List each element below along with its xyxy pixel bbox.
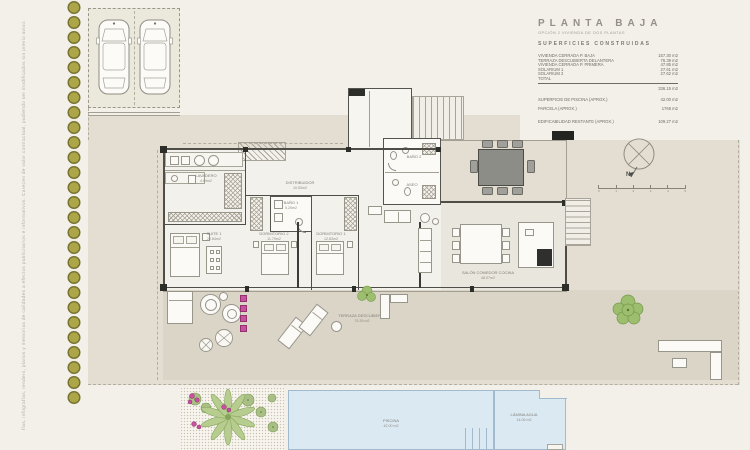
pool-steps xyxy=(465,428,493,450)
flower-pot xyxy=(240,305,247,312)
canopy-edge-right xyxy=(566,140,567,203)
column xyxy=(346,147,351,152)
chair xyxy=(512,187,523,195)
driveway-edge-2 xyxy=(88,115,180,116)
room-label-dormitorio2: DORMITORIO 2 11.79m2 xyxy=(259,232,288,241)
daybed-line xyxy=(169,300,192,301)
surface-label: PARCELA (APROX.) xyxy=(538,107,646,112)
tick-label: 3 xyxy=(650,189,652,193)
parking-area xyxy=(88,8,180,108)
terrace-tree xyxy=(608,290,648,330)
room-label-distribuidor: DISTRIBUIDOR 10.53m2 xyxy=(286,181,315,190)
page-subtitle: OPCIÓN 2 VIVIENDA DE DOS PLANTAS xyxy=(538,30,678,35)
surfaces-row: TOTAL xyxy=(538,77,678,82)
tick-label: 4 xyxy=(667,189,669,193)
sofa-piece xyxy=(380,294,390,319)
chair xyxy=(497,187,508,195)
flower-pot xyxy=(240,315,247,322)
cushion-line xyxy=(398,212,399,223)
tick-label: 2 xyxy=(633,189,635,193)
surfaces-table: VIVIENDA CERRADA P. BAJA 157.30 m2 TERRA… xyxy=(538,54,678,81)
wall-suite-top xyxy=(165,224,245,225)
tick-mark xyxy=(633,185,634,189)
chair xyxy=(527,160,535,173)
pillow xyxy=(276,244,286,251)
spoke-tables xyxy=(198,328,243,354)
scale-tick: 4 xyxy=(667,185,669,193)
bed-dorm2 xyxy=(261,241,289,275)
room-label-bano2: BAÑO 2 xyxy=(407,155,422,160)
wardrobe-dorm2 xyxy=(250,197,263,231)
chair xyxy=(470,160,478,173)
hob-icon xyxy=(537,249,552,266)
bed-line xyxy=(317,253,343,254)
chair xyxy=(497,140,508,148)
column xyxy=(160,284,167,291)
sofa-piece xyxy=(390,294,408,303)
chair xyxy=(482,140,493,148)
round-chair xyxy=(222,304,241,323)
shower-icon xyxy=(422,185,436,199)
sofa-vertical xyxy=(418,228,432,273)
laundry-counter xyxy=(165,152,243,167)
column xyxy=(243,147,248,152)
nightstand xyxy=(347,241,353,248)
boundary-dash-right xyxy=(738,140,739,385)
dimension-line-left xyxy=(157,150,158,380)
drawer xyxy=(216,250,220,254)
sink-icon xyxy=(171,175,178,182)
sofa-piece xyxy=(710,352,722,380)
pillow xyxy=(186,236,197,244)
surfaces-heading: SUPERFICIES CONSTRUIDAS xyxy=(538,41,678,47)
drawer xyxy=(210,250,214,254)
toilet-icon xyxy=(404,187,411,196)
sink-icon xyxy=(392,179,399,186)
side-table xyxy=(420,213,430,223)
coffee-table xyxy=(672,358,687,368)
washer-icon xyxy=(194,155,205,166)
dresser xyxy=(206,246,222,274)
total-divider xyxy=(538,83,678,84)
suite-shower xyxy=(224,173,242,209)
room-label-suite1: SUITE 1 20.84m2 xyxy=(206,232,221,241)
appliance-icon xyxy=(181,156,190,165)
page-title: PLANTA BAJA xyxy=(538,18,678,29)
water-sheet-detail xyxy=(547,444,563,450)
scale-tick: 3 xyxy=(650,185,652,193)
cushion-line xyxy=(420,262,432,263)
scale-tick: 0 xyxy=(598,185,600,193)
sink-icon xyxy=(525,229,534,236)
side-table xyxy=(219,292,228,301)
scale-tick: 2 xyxy=(633,185,635,193)
surface-value: 1766 m2 xyxy=(646,107,678,112)
tick-label: 0 xyxy=(598,189,600,193)
surface-label: TOTAL xyxy=(538,77,646,82)
surface-value xyxy=(646,77,678,82)
porch-table xyxy=(478,149,524,186)
kitchen-island xyxy=(518,222,554,268)
chair xyxy=(512,140,523,148)
room-label-aseo: ASEO xyxy=(406,183,417,188)
boundary-dash-bottom xyxy=(88,384,738,385)
round-chair-seat xyxy=(205,299,217,311)
terrace-area xyxy=(163,290,738,380)
wall-top xyxy=(163,148,441,150)
drawer xyxy=(210,266,214,270)
tick-label: 5 xyxy=(684,189,686,193)
wall-suite-bath xyxy=(165,170,245,171)
chair xyxy=(482,187,493,195)
room-label-terraza: TERRAZA DESCUBIERTA 76.39 m2 xyxy=(338,314,386,323)
column xyxy=(562,284,569,291)
lounger-line xyxy=(312,312,322,320)
tick-mark xyxy=(616,185,617,189)
drawer xyxy=(210,258,214,262)
room-label-salon: SALÓN COMEDOR COCINA 48.07m2 xyxy=(462,271,514,280)
room-label-lavadero: LAVADERO 4.69m2 xyxy=(195,174,216,183)
title-block: PLANTA BAJA OPCIÓN 2 VIVIENDA DE DOS PLA… xyxy=(538,18,678,129)
surfaces-row: PARCELA (APROX.) 1766 m2 xyxy=(538,107,678,112)
entry-stairs xyxy=(412,96,464,140)
sofa-piece xyxy=(658,340,722,352)
drawer xyxy=(216,266,220,270)
wardrobe-suite xyxy=(168,212,242,222)
disclaimer-text: fías, infografías, renders, planos y mem… xyxy=(22,0,32,450)
cushion-line xyxy=(420,240,432,241)
wall-lavadero xyxy=(245,150,246,225)
surface-label: EDIFICABILIDAD RESTANTE (APROX.) xyxy=(538,120,646,125)
bed-line xyxy=(262,253,288,254)
driveway-edge-1 xyxy=(88,112,180,113)
tower-pier xyxy=(349,89,365,96)
mullion xyxy=(245,286,249,292)
daybed xyxy=(167,291,193,324)
cushion-line xyxy=(420,251,432,252)
chair xyxy=(452,254,460,263)
scale-bar: 0 1 2 3 4 5 xyxy=(598,185,686,193)
room-label-lamina-agua: LÁMINA AGUA 14.06 m2 xyxy=(511,413,538,422)
toilet-icon xyxy=(390,151,397,160)
extra-surfaces-table: SUPERFICIE DE PISCINA (APROX.) 42.00 m2 … xyxy=(538,98,678,124)
drawer xyxy=(216,258,220,262)
bed-dorm1 xyxy=(316,241,344,275)
compass-north-label: N xyxy=(626,172,630,178)
wardrobe-dorm1 xyxy=(344,197,357,231)
parked-cars xyxy=(89,9,181,109)
appliance-icon xyxy=(170,156,179,165)
tick-mark xyxy=(667,185,668,189)
column xyxy=(160,146,167,153)
wall-dorm1-salon xyxy=(358,195,359,290)
surface-value: 109.27 m2 xyxy=(646,120,678,125)
slide-track xyxy=(297,222,299,288)
hedge-trees xyxy=(66,0,82,406)
bed-suite xyxy=(170,233,200,277)
pillow xyxy=(331,244,341,251)
chair xyxy=(452,241,460,250)
flower-pot xyxy=(240,295,247,302)
surfaces-row: EDIFICABILIDAD RESTANTE (APROX.) 109.27 … xyxy=(538,120,678,125)
bench xyxy=(368,206,382,215)
garden-bed xyxy=(180,387,285,450)
tower-divider xyxy=(369,91,370,147)
side-table xyxy=(432,218,439,225)
room-label-dormitorio1: DORMITORIO 1 12.83m2 xyxy=(316,232,345,241)
chair xyxy=(452,228,460,237)
sink-icon xyxy=(274,200,283,209)
surfaces-row: SUPERFICIE DE PISCINA (APROX.) 42.00 m2 xyxy=(538,98,678,103)
mullion xyxy=(470,286,474,292)
water-sheet-notch xyxy=(539,390,567,399)
chair xyxy=(502,228,510,237)
exterior-stairs xyxy=(565,198,591,246)
nightstand xyxy=(253,241,259,248)
garden-plants xyxy=(180,387,285,450)
pillow xyxy=(173,236,184,244)
tick-mark xyxy=(650,185,651,189)
sink-icon xyxy=(274,213,283,222)
tick-mark xyxy=(598,185,599,189)
wall-salon-top xyxy=(441,201,567,203)
round-chair-seat xyxy=(227,309,237,319)
wall-dorm-divider xyxy=(311,231,312,290)
bath-divider xyxy=(385,172,439,173)
terrace-bush xyxy=(356,284,378,306)
column xyxy=(436,147,441,152)
legend-block xyxy=(552,131,574,140)
chair xyxy=(502,241,510,250)
surface-label: SUPERFICIE DE PISCINA (APROX.) xyxy=(538,98,646,103)
scale-tick: 1 xyxy=(615,185,617,193)
scale-tick: 5 xyxy=(684,185,686,193)
pillow xyxy=(319,244,329,251)
tick-label: 1 xyxy=(615,189,617,193)
door-arc xyxy=(388,163,396,171)
compass-icon xyxy=(616,136,662,182)
floor-plan-sheet: fías, infografías, renders, planos y mem… xyxy=(0,0,750,450)
room-label-bano1: BAÑO 1 5.25m2 xyxy=(284,201,299,210)
room-label-piscina: PISCINA 42.00 m2 xyxy=(383,419,399,428)
total-value: 336.15 m2 xyxy=(538,86,678,91)
tick-mark xyxy=(685,185,686,189)
chair xyxy=(502,254,510,263)
dining-table xyxy=(460,224,502,264)
washer-icon xyxy=(208,155,219,166)
surface-value: 42.00 m2 xyxy=(646,98,678,103)
sofa-horizontal xyxy=(384,210,411,223)
pillow xyxy=(264,244,274,251)
bed-line xyxy=(171,247,199,248)
round-chair xyxy=(200,294,221,315)
